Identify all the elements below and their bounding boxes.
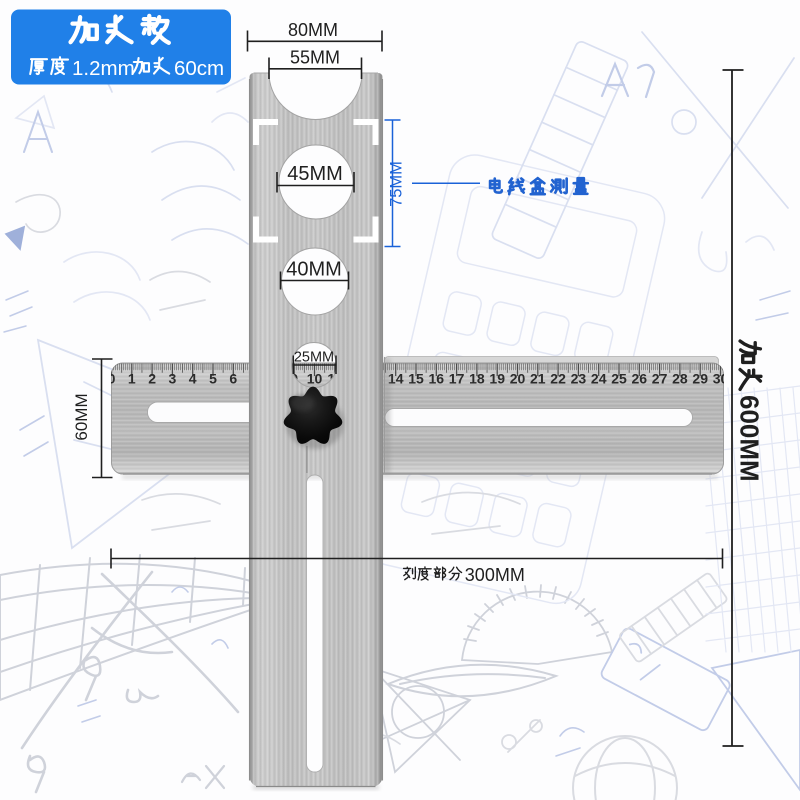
svg-text:45MM: 45MM <box>287 163 343 185</box>
svg-text:40MM: 40MM <box>286 259 342 281</box>
svg-text:60MM: 60MM <box>72 393 91 440</box>
svg-text:3: 3 <box>169 371 177 387</box>
svg-text:26: 26 <box>632 371 648 387</box>
svg-text:1: 1 <box>128 371 136 387</box>
svg-text:28: 28 <box>672 371 688 387</box>
svg-text:21: 21 <box>530 371 546 387</box>
svg-text:15: 15 <box>408 371 424 387</box>
svg-text:10: 10 <box>307 371 323 387</box>
svg-text:300MM: 300MM <box>465 565 525 585</box>
svg-text:22: 22 <box>550 371 566 387</box>
svg-text:17: 17 <box>449 371 465 387</box>
svg-text:2: 2 <box>148 371 156 387</box>
svg-text:1.2mm: 1.2mm <box>72 57 135 80</box>
svg-text:23: 23 <box>571 371 587 387</box>
svg-text:75MM: 75MM <box>388 161 406 207</box>
svg-text:5: 5 <box>209 371 217 387</box>
svg-text:600MM: 600MM <box>735 395 765 482</box>
svg-text:60cm: 60cm <box>174 57 224 80</box>
svg-text:24: 24 <box>591 371 607 387</box>
svg-text:6: 6 <box>229 371 237 387</box>
svg-text:16: 16 <box>429 371 445 387</box>
svg-text:18: 18 <box>469 371 485 387</box>
svg-text:27: 27 <box>652 371 668 387</box>
svg-text:25: 25 <box>611 371 627 387</box>
svg-text:19: 19 <box>489 371 505 387</box>
svg-text:80MM: 80MM <box>288 20 338 40</box>
svg-text:25MM: 25MM <box>294 350 334 366</box>
svg-text:29: 29 <box>692 371 708 387</box>
svg-text:20: 20 <box>510 371 526 387</box>
svg-text:4: 4 <box>189 371 197 387</box>
svg-text:55MM: 55MM <box>290 48 340 68</box>
